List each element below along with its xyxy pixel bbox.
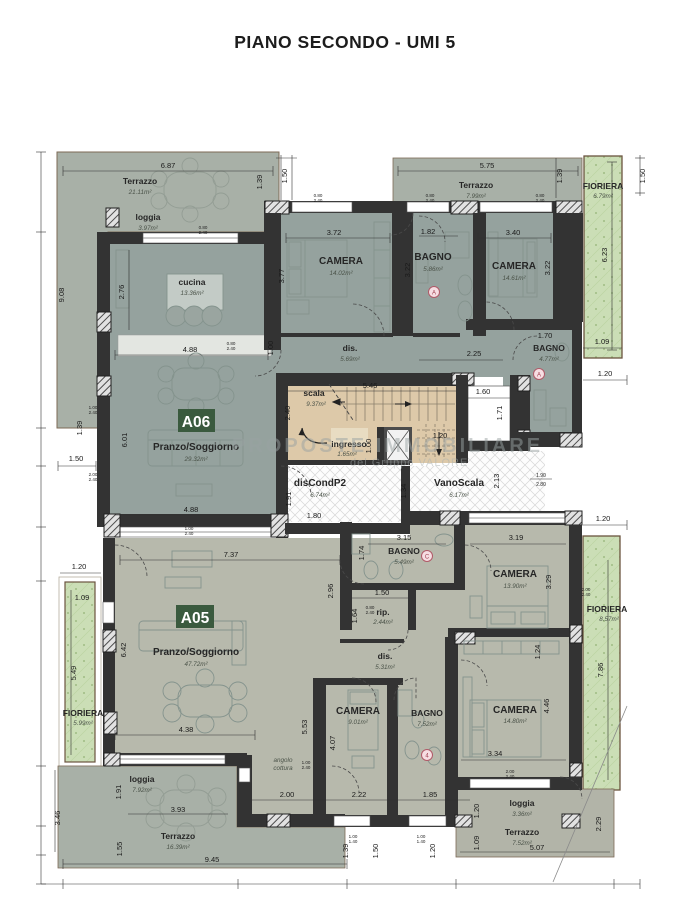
svg-text:6.42: 6.42: [119, 643, 128, 658]
svg-text:16.39m²: 16.39m²: [166, 844, 190, 851]
svg-text:dis.: dis.: [378, 651, 393, 661]
svg-text:1.00: 1.00: [364, 439, 373, 454]
svg-text:2.40: 2.40: [227, 346, 236, 351]
svg-text:VanoScala: VanoScala: [434, 478, 484, 489]
svg-text:9.37m²: 9.37m²: [306, 401, 327, 408]
svg-text:1.50: 1.50: [280, 169, 289, 184]
svg-text:1.20: 1.20: [433, 431, 448, 440]
svg-text:C: C: [425, 555, 430, 561]
svg-text:loggia: loggia: [129, 774, 154, 784]
svg-text:5.99m²: 5.99m²: [73, 720, 94, 727]
svg-text:2.40: 2.40: [185, 531, 194, 536]
svg-text:Pranzo/Soggiorno: Pranzo/Soggiorno: [153, 647, 239, 658]
svg-text:rip.: rip.: [376, 607, 389, 617]
svg-text:1.64: 1.64: [350, 609, 359, 624]
svg-text:1.55: 1.55: [115, 842, 124, 857]
svg-text:7.99m²: 7.99m²: [466, 193, 487, 200]
svg-text:A06: A06: [182, 414, 211, 431]
svg-text:29.32m²: 29.32m²: [183, 456, 208, 463]
svg-text:2.80: 2.80: [536, 482, 546, 488]
svg-text:2.40: 2.40: [89, 477, 98, 482]
svg-text:1.71: 1.71: [495, 406, 504, 421]
svg-text:Terrazzo: Terrazzo: [505, 827, 539, 837]
svg-text:1.40: 1.40: [417, 839, 426, 844]
svg-text:2.40: 2.40: [506, 774, 515, 779]
svg-text:cucina: cucina: [179, 277, 206, 287]
svg-text:5.46: 5.46: [363, 381, 378, 390]
svg-text:A: A: [432, 291, 436, 297]
svg-text:1.74: 1.74: [357, 546, 366, 561]
svg-text:1.60: 1.60: [476, 387, 491, 396]
svg-text:1.39: 1.39: [255, 175, 264, 190]
svg-text:3.19: 3.19: [509, 533, 524, 542]
svg-text:6.01: 6.01: [120, 433, 129, 448]
svg-text:A: A: [537, 373, 541, 379]
svg-text:6.17m²: 6.17m²: [449, 492, 470, 499]
svg-text:5.75: 5.75: [480, 161, 495, 170]
svg-text:PROPOSTE IMMOBILIARE: PROPOSTE IMMOBILIARE: [232, 435, 543, 457]
svg-text:3.36m²: 3.36m²: [512, 811, 533, 818]
svg-text:1.50: 1.50: [371, 844, 380, 859]
svg-text:1.20: 1.20: [72, 562, 87, 571]
svg-text:1.20: 1.20: [428, 844, 437, 859]
svg-text:1.39: 1.39: [75, 421, 84, 436]
svg-text:cottura: cottura: [273, 765, 293, 772]
svg-text:7.37: 7.37: [224, 550, 239, 559]
svg-text:3.77: 3.77: [277, 269, 286, 284]
svg-text:3.40: 3.40: [506, 228, 521, 237]
svg-text:3.29: 3.29: [544, 575, 553, 590]
svg-text:1.20: 1.20: [596, 514, 611, 523]
svg-text:CAMERA: CAMERA: [493, 569, 537, 580]
svg-text:1.20: 1.20: [598, 369, 613, 378]
svg-text:3.15: 3.15: [397, 533, 412, 542]
svg-text:14.61m²: 14.61m²: [502, 275, 526, 282]
svg-text:BAGNO: BAGNO: [388, 546, 420, 556]
svg-text:5.49: 5.49: [69, 666, 78, 681]
svg-text:3.22: 3.22: [403, 263, 412, 278]
svg-text:4.07: 4.07: [328, 736, 337, 751]
svg-text:1.39: 1.39: [341, 844, 350, 859]
svg-text:del Gruppo VALORE: del Gruppo VALORE: [350, 457, 468, 469]
svg-text:4.77m²: 4.77m²: [539, 356, 560, 363]
svg-text:1.09: 1.09: [75, 593, 90, 602]
svg-text:1.00: 1.00: [266, 341, 275, 356]
svg-text:FIORIERA: FIORIERA: [587, 604, 628, 614]
svg-text:3.93: 3.93: [171, 805, 186, 814]
svg-text:9.01m²: 9.01m²: [348, 719, 369, 726]
svg-text:Pranzo/Soggiorno: Pranzo/Soggiorno: [153, 442, 239, 453]
svg-text:5.49m²: 5.49m²: [394, 559, 415, 566]
svg-text:1.50: 1.50: [69, 454, 84, 463]
svg-text:FIORIERA: FIORIERA: [583, 181, 624, 191]
svg-text:21.11m²: 21.11m²: [128, 189, 153, 196]
svg-text:6.23: 6.23: [600, 248, 609, 263]
svg-text:47.72m²: 47.72m²: [184, 661, 208, 668]
svg-text:1.40: 1.40: [349, 839, 358, 844]
svg-text:4.88: 4.88: [184, 505, 199, 514]
svg-text:BAGNO: BAGNO: [533, 343, 565, 353]
svg-text:1.20: 1.20: [472, 804, 481, 819]
svg-text:9.08: 9.08: [57, 288, 66, 303]
svg-text:5.31m²: 5.31m²: [375, 664, 396, 671]
svg-text:CAMERA: CAMERA: [492, 261, 536, 272]
svg-text:1.90: 1.90: [536, 473, 546, 479]
svg-text:disCondP2: disCondP2: [294, 478, 347, 489]
svg-text:1.09: 1.09: [595, 337, 610, 346]
svg-text:2.40: 2.40: [366, 610, 375, 615]
svg-text:3.22: 3.22: [543, 261, 552, 276]
svg-text:2.40: 2.40: [283, 406, 292, 421]
svg-text:2.40: 2.40: [302, 765, 311, 770]
svg-text:7.92m²: 7.92m²: [132, 787, 153, 794]
svg-text:7.86: 7.86: [596, 663, 605, 678]
svg-text:1.34: 1.34: [399, 484, 408, 499]
svg-text:3.46: 3.46: [53, 811, 62, 826]
svg-text:2.13: 2.13: [492, 474, 501, 489]
svg-text:9.45: 9.45: [205, 855, 220, 864]
svg-text:2.00: 2.00: [280, 790, 295, 799]
svg-text:2.44m²: 2.44m²: [372, 619, 394, 626]
svg-text:5.69m²: 5.69m²: [340, 356, 361, 363]
svg-text:1.91: 1.91: [114, 785, 123, 800]
svg-text:6.79m²: 6.79m²: [593, 193, 614, 200]
svg-text:4.38: 4.38: [179, 725, 194, 734]
svg-text:14.02m²: 14.02m²: [329, 270, 353, 277]
svg-text:8.57m²: 8.57m²: [599, 616, 620, 623]
svg-text:1.50: 1.50: [375, 588, 390, 597]
svg-text:3.72: 3.72: [327, 228, 342, 237]
svg-text:loggia: loggia: [135, 212, 160, 222]
svg-text:angolo: angolo: [274, 757, 293, 764]
svg-text:CAMERA: CAMERA: [336, 706, 380, 717]
svg-text:BAGNO: BAGNO: [414, 252, 451, 263]
svg-text:Terrazzo: Terrazzo: [161, 831, 195, 841]
svg-text:2.22: 2.22: [352, 790, 367, 799]
svg-text:13.90m²: 13.90m²: [503, 583, 527, 590]
svg-text:2.40: 2.40: [536, 198, 545, 203]
svg-text:1.91: 1.91: [284, 492, 293, 507]
svg-text:4.88: 4.88: [183, 345, 198, 354]
svg-text:5.07: 5.07: [530, 843, 545, 852]
svg-text:1.50: 1.50: [638, 169, 647, 184]
svg-text:2.40: 2.40: [426, 198, 435, 203]
svg-text:2.40: 2.40: [582, 592, 591, 597]
svg-text:loggia: loggia: [509, 798, 534, 808]
svg-text:1.09: 1.09: [472, 836, 481, 851]
svg-text:2.29: 2.29: [594, 817, 603, 832]
svg-text:2.40: 2.40: [89, 410, 98, 415]
svg-text:BAGNO: BAGNO: [411, 708, 443, 718]
svg-text:1.39: 1.39: [555, 169, 564, 184]
svg-text:2.40: 2.40: [314, 198, 323, 203]
svg-text:2.40: 2.40: [199, 230, 208, 235]
svg-text:6.87: 6.87: [161, 161, 176, 170]
svg-text:1.80: 1.80: [307, 511, 322, 520]
svg-text:dis.: dis.: [343, 343, 358, 353]
svg-text:scala: scala: [303, 388, 325, 398]
svg-text:CAMERA: CAMERA: [493, 705, 537, 716]
svg-text:1.70: 1.70: [538, 331, 553, 340]
svg-text:13.36m²: 13.36m²: [180, 290, 204, 297]
svg-text:Terrazzo: Terrazzo: [123, 176, 157, 186]
svg-text:PIANO SECONDO - UMI 5: PIANO SECONDO - UMI 5: [234, 32, 456, 52]
svg-text:6.74m²: 6.74m²: [310, 492, 331, 499]
svg-text:5.53: 5.53: [300, 720, 309, 735]
svg-text:2.76: 2.76: [117, 285, 126, 300]
svg-text:3.97m²: 3.97m²: [138, 225, 159, 232]
svg-text:1.85: 1.85: [423, 790, 438, 799]
svg-text:FIORIERA: FIORIERA: [63, 708, 104, 718]
svg-text:A05: A05: [181, 610, 210, 627]
svg-text:1.24: 1.24: [533, 645, 542, 660]
svg-text:1.82: 1.82: [421, 227, 436, 236]
svg-text:7.52m²: 7.52m²: [417, 721, 438, 728]
svg-text:Terrazzo: Terrazzo: [459, 180, 493, 190]
svg-text:2.96: 2.96: [326, 584, 335, 599]
svg-text:5.86m²: 5.86m²: [423, 266, 444, 273]
svg-text:CAMERA: CAMERA: [319, 256, 363, 267]
svg-text:2.25: 2.25: [467, 349, 482, 358]
svg-text:14.80m²: 14.80m²: [503, 718, 527, 725]
svg-text:3.34: 3.34: [488, 749, 503, 758]
svg-text:4.46: 4.46: [542, 699, 551, 714]
